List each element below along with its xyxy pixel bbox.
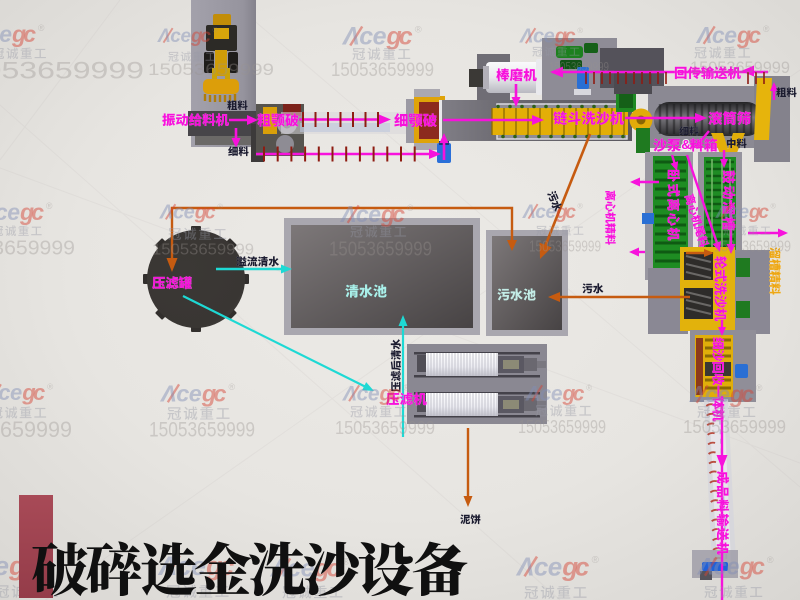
svg-text:gc: gc	[380, 201, 405, 227]
svg-text:15053659999: 15053659999	[335, 418, 435, 438]
svg-text:gc: gc	[561, 551, 590, 581]
svg-text:Λce: Λce	[695, 22, 737, 48]
svg-text:gc: gc	[19, 199, 44, 225]
svg-text:®: ®	[763, 24, 770, 34]
svg-text:®: ®	[415, 25, 422, 36]
svg-text:Λce: Λce	[515, 551, 562, 581]
svg-text:&: &	[681, 137, 691, 152]
svg-text:Λce: Λce	[0, 21, 12, 47]
svg-text:gc: gc	[555, 202, 576, 223]
svg-text:®: ®	[47, 382, 54, 392]
svg-text:15053659999: 15053659999	[529, 238, 601, 255]
svg-text:®: ®	[756, 383, 763, 393]
svg-text:gc: gc	[554, 26, 576, 48]
svg-text:Λce: Λce	[522, 202, 556, 223]
svg-text:15053659999: 15053659999	[518, 417, 606, 437]
svg-text:Λce: Λce	[159, 380, 202, 406]
svg-text:gc: gc	[21, 380, 45, 405]
svg-text:®: ®	[217, 202, 223, 211]
svg-text:15053659999: 15053659999	[329, 238, 432, 260]
svg-text:15053659999: 15053659999	[683, 416, 786, 437]
svg-text:15053659999: 15053659999	[331, 59, 434, 81]
svg-text:®: ®	[592, 555, 600, 566]
svg-text:15053659999: 15053659999	[148, 60, 274, 79]
svg-text:®: ®	[577, 26, 583, 35]
svg-text:®: ®	[407, 203, 414, 213]
svg-text:®: ®	[767, 555, 774, 565]
svg-text:®: ®	[586, 383, 592, 392]
svg-text:Λce: Λce	[339, 201, 381, 227]
svg-text:®: ®	[578, 202, 584, 211]
svg-text:gc: gc	[194, 202, 216, 224]
svg-text:Λce: Λce	[696, 554, 740, 581]
svg-text:gc: gc	[190, 26, 211, 47]
svg-text:gc: gc	[379, 382, 402, 405]
svg-text:15053659999: 15053659999	[0, 57, 144, 84]
svg-text:gc: gc	[748, 202, 769, 223]
svg-text:gc: gc	[11, 21, 36, 47]
svg-text:15053659999: 15053659999	[152, 241, 254, 258]
svg-text:®: ®	[403, 383, 409, 392]
svg-text:®: ®	[38, 23, 45, 33]
svg-text:gc: gc	[729, 381, 754, 407]
svg-text:15053659999: 15053659999	[714, 238, 791, 255]
svg-text:gc: gc	[736, 22, 761, 48]
svg-text:Λce: Λce	[159, 202, 195, 224]
svg-text:gc: gc	[386, 23, 413, 51]
svg-text:gc: gc	[739, 554, 765, 581]
svg-text:Λce: Λce	[0, 380, 22, 405]
svg-text:Λce: Λce	[0, 199, 20, 225]
svg-text:15053659999: 15053659999	[149, 418, 255, 442]
svg-text:gc: gc	[562, 382, 585, 405]
svg-text:Λce: Λce	[342, 382, 380, 405]
svg-text:®: ®	[771, 202, 777, 211]
svg-text:®: ®	[228, 382, 235, 392]
svg-text:Λce: Λce	[688, 381, 730, 407]
svg-text:15053659999: 15053659999	[0, 417, 72, 442]
svg-text:15053659999: 15053659999	[0, 237, 75, 259]
svg-text:Λce: Λce	[519, 26, 555, 48]
svg-text:gc: gc	[201, 380, 227, 406]
svg-text:Λce: Λce	[715, 202, 749, 223]
svg-text:Λce: Λce	[341, 23, 387, 51]
svg-text:15053659999: 15053659999	[549, 59, 609, 74]
svg-text:®: ®	[46, 201, 53, 211]
svg-text:®: ®	[213, 26, 219, 35]
svg-text:Λce: Λce	[157, 26, 191, 47]
svg-text:Λce: Λce	[0, 551, 9, 581]
svg-text:Λce: Λce	[525, 382, 563, 405]
svg-text:15053659999: 15053659999	[690, 58, 790, 77]
